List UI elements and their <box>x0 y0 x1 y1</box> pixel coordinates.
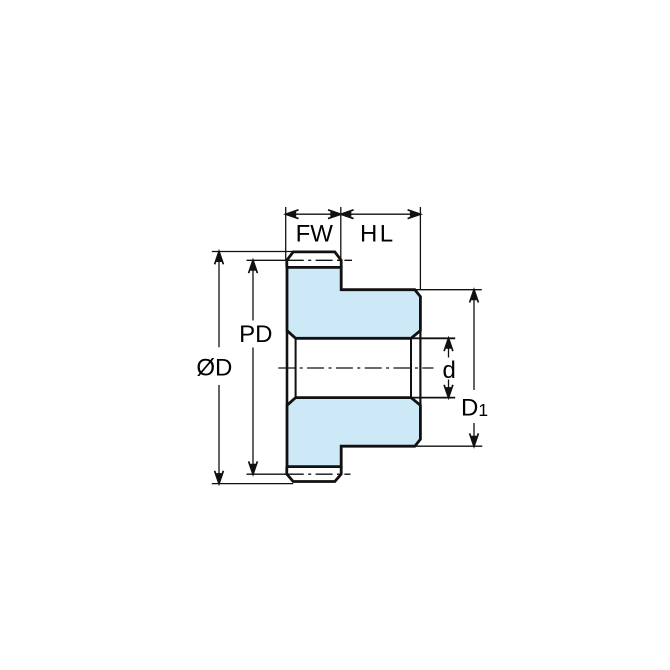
svg-text:d: d <box>443 357 456 384</box>
svg-text:PD: PD <box>239 321 272 348</box>
svg-text:ØD: ØD <box>196 355 232 382</box>
svg-text:HL: HL <box>360 221 395 248</box>
svg-text:D1: D1 <box>461 395 488 422</box>
svg-text:FW: FW <box>296 221 334 248</box>
